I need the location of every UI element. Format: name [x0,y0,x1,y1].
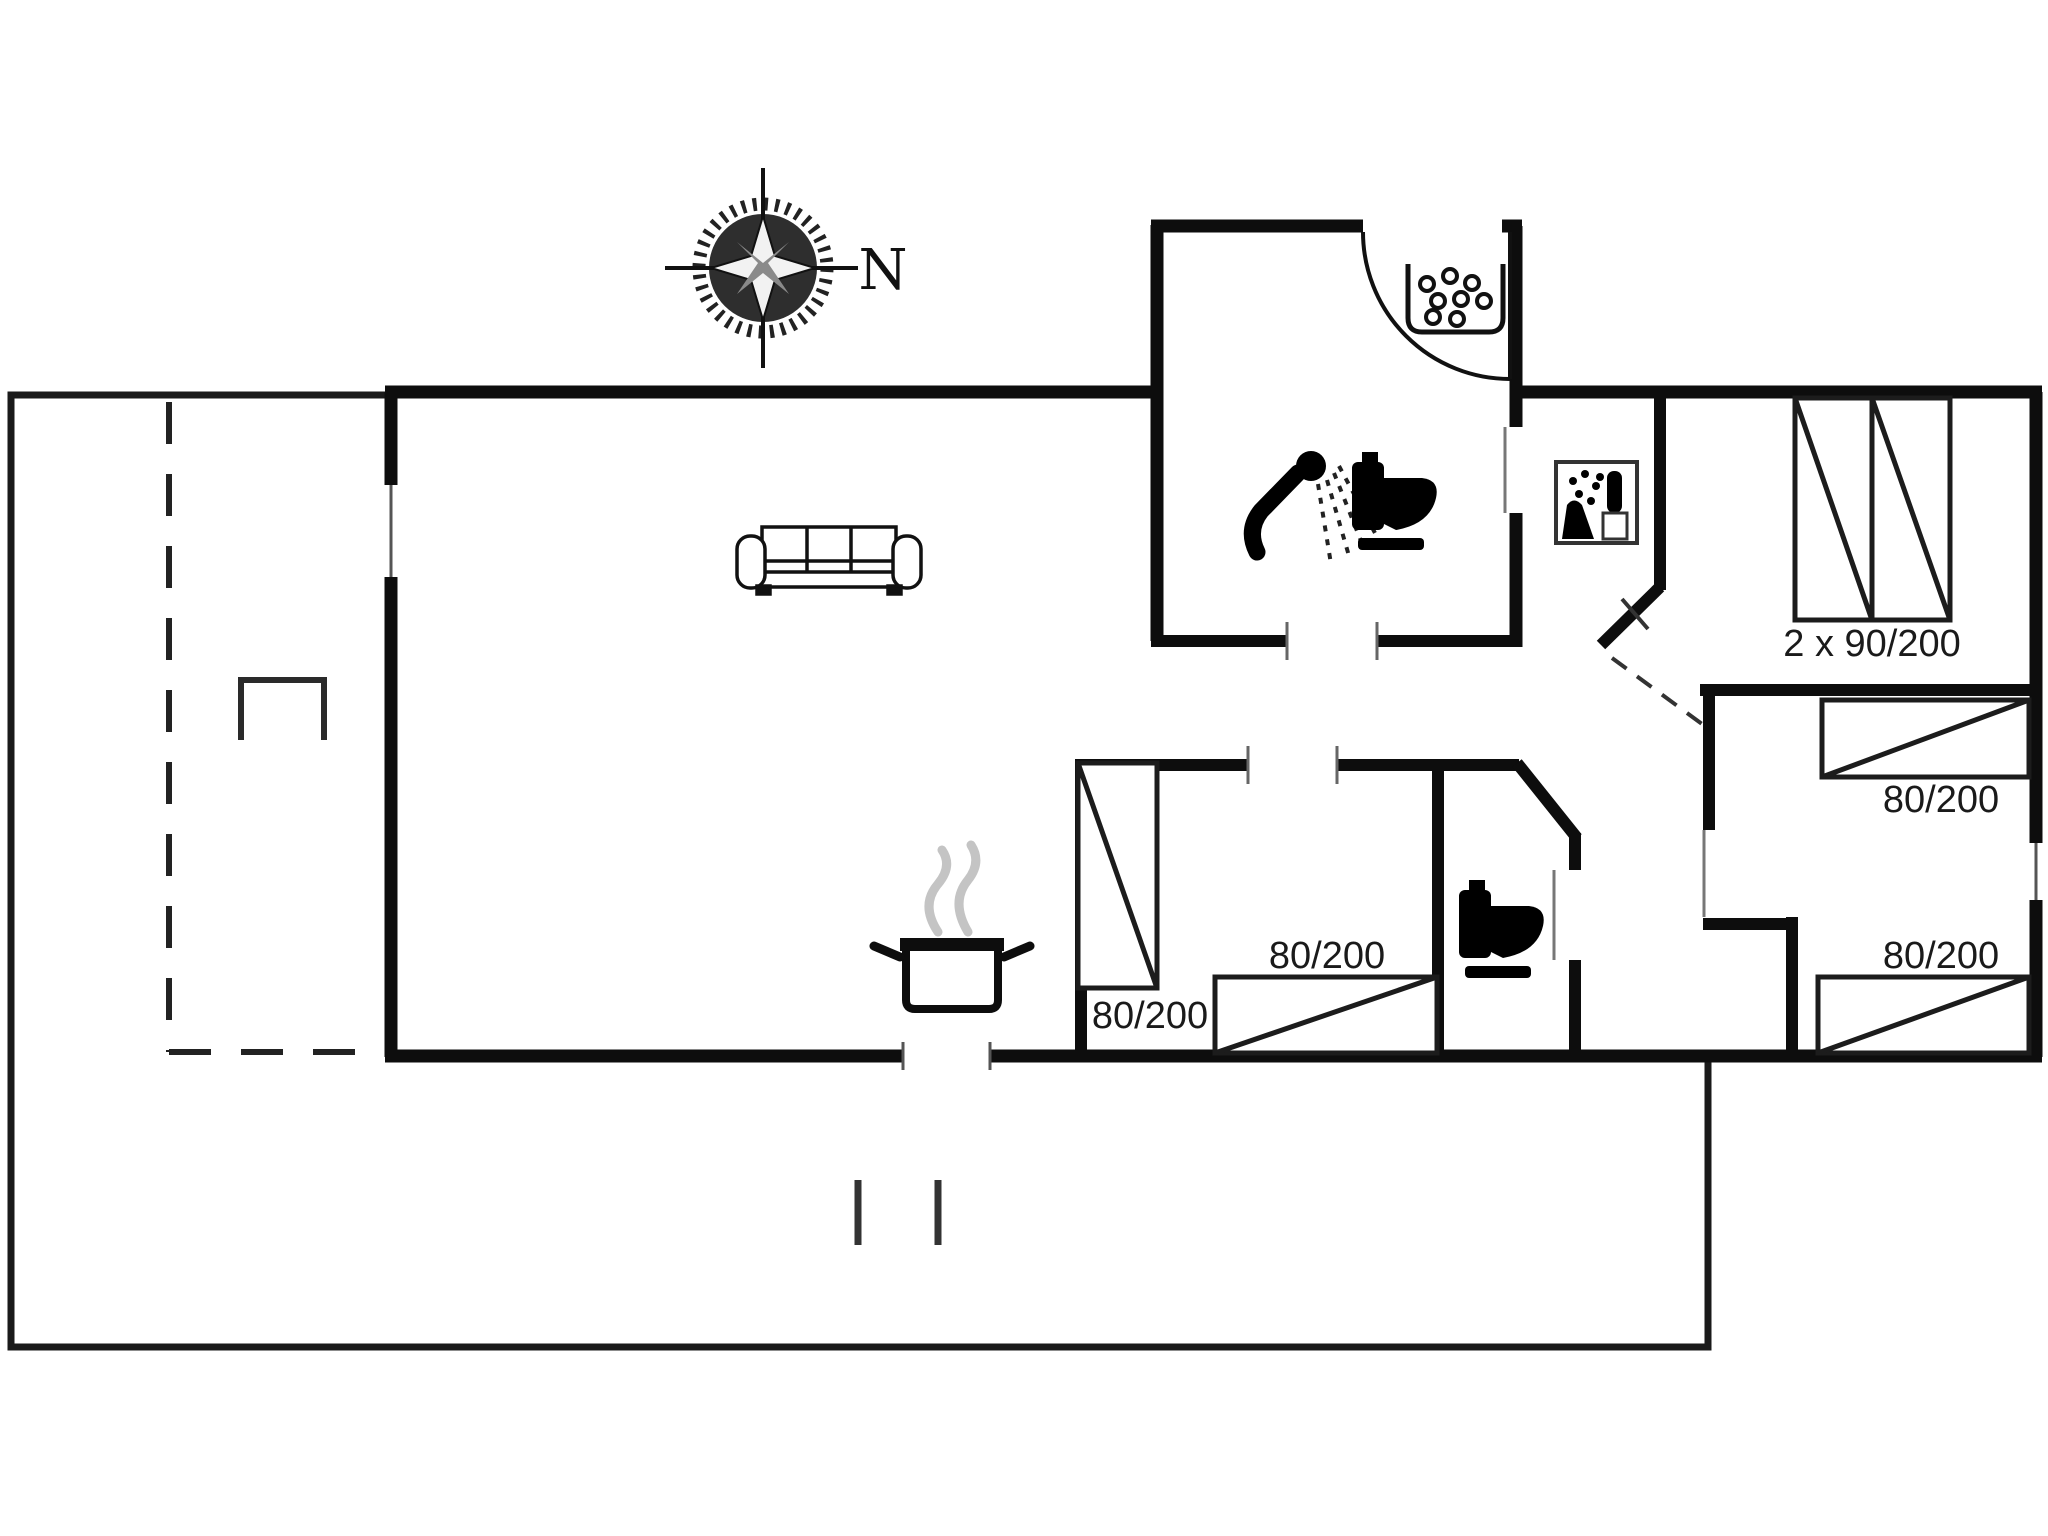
grill-icon [241,680,324,740]
washing-machine-icon [1556,462,1637,543]
pot-rim [900,938,1004,951]
bed-icon [1818,977,2029,1053]
terrace-step-marks [858,1180,938,1245]
bed-size-label: 80/200 [1269,935,1385,977]
covered-terrace-dashed-line [169,402,383,1052]
toilet-icon [1352,452,1437,550]
terrace-door-ticks [903,1042,990,1070]
pot-body [906,951,998,1009]
compass-rose-icon [665,168,858,368]
floor-plan-page: N [0,0,2048,1536]
washing-machine-boiler [1607,471,1622,513]
bed-size-label: 80/200 [1883,779,1999,821]
bed-icon [1215,977,1437,1053]
sofa-foot-left [757,586,770,594]
wc-chamfer-wall [1517,763,1577,838]
steam-right [959,845,976,932]
bed-size-label: 80/200 [1883,935,1999,977]
bathroom-door-ticks [1287,622,1377,660]
sofa-armrest-right [893,536,921,588]
floor-plan-canvas: N [0,0,2048,1536]
bed-icon [1078,763,1157,988]
north-label: N [859,238,908,303]
washing-machine-base [1603,513,1627,539]
utility-door-swing-dashed [1612,658,1702,724]
bed-icon [1872,398,1950,620]
shower-head [1296,451,1326,481]
shower-handle [1252,473,1298,552]
bed-size-label: 2 x 90/200 [1783,623,1960,665]
bed-icon [1822,700,2029,777]
toilet-icon [1459,880,1544,978]
sofa-foot-right [888,586,901,594]
sofa-icon [737,527,921,594]
cooking-pot-icon [874,845,1030,1009]
sofa-armrest-left [737,536,765,588]
washbasin-icon [1408,264,1503,332]
utility-chamfer-wall [1601,587,1660,645]
closet-l-wall [1703,917,1792,1057]
bed-size-label: 80/200 [1092,995,1208,1037]
bedroom-door-ticks [1248,746,1337,784]
bed-icon [1795,398,1872,620]
steam-left [929,850,947,932]
sofa-cushions [762,527,896,572]
